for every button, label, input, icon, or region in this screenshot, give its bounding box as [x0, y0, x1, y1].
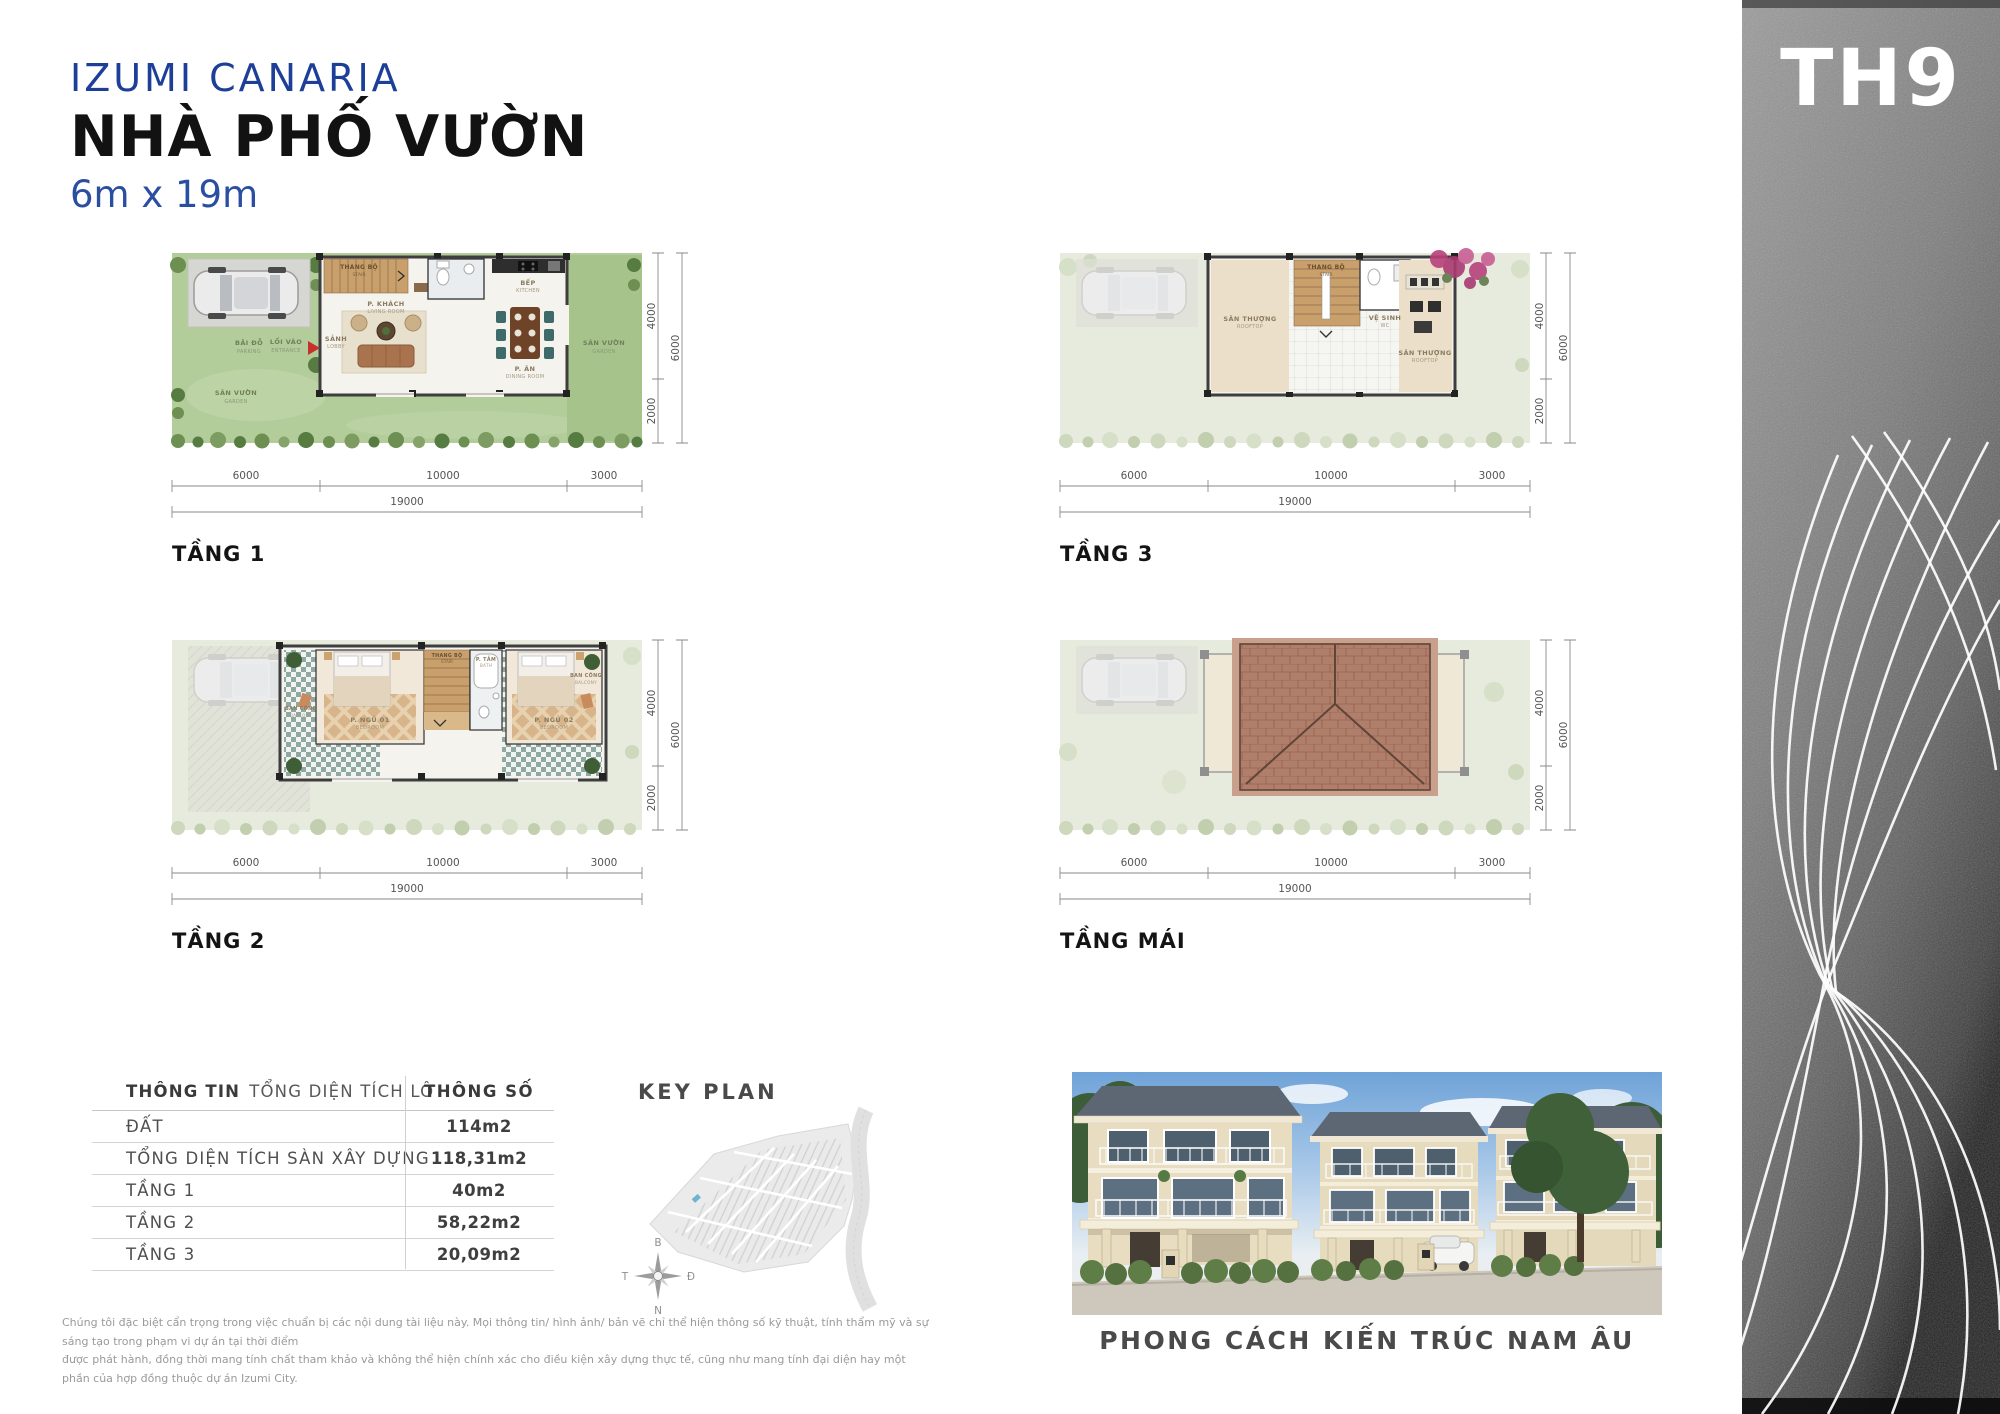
svg-text:SẢNH: SẢNH	[325, 333, 347, 343]
table-header-right: THÔNG SỐ	[405, 1082, 553, 1101]
svg-text:3000: 3000	[1479, 470, 1506, 482]
disclaimer-line-1: Chúng tôi đặc biệt cẩn trọng trong việc …	[62, 1314, 930, 1351]
svg-text:4000: 4000	[646, 303, 658, 330]
svg-text:3000: 3000	[1479, 857, 1506, 869]
project-name: IZUMI CANARIA	[70, 56, 588, 100]
floor-label-tang-2: TẦNG 2	[172, 929, 701, 953]
svg-text:P. ĂN: P. ĂN	[515, 364, 536, 373]
car-top-view	[194, 267, 298, 319]
svg-text:BALCONY: BALCONY	[575, 680, 597, 685]
svg-text:STAIR: STAIR	[1319, 272, 1333, 278]
svg-text:LOBBY: LOBBY	[327, 344, 345, 350]
header: IZUMI CANARIA NHÀ PHỐ VƯỜN 6m x 19m	[70, 56, 588, 216]
disclaimer-line-2: được phát hành, đồng thời mang tính chất…	[62, 1351, 930, 1388]
svg-text:10000: 10000	[426, 470, 459, 482]
svg-text:BÃI ĐỖ: BÃI ĐỖ	[235, 337, 263, 347]
svg-text:6000: 6000	[670, 722, 682, 749]
table-divider	[405, 1076, 406, 1269]
floor-label-tang-mai: TẦNG MÁI	[1060, 929, 1589, 953]
svg-text:KITCHEN: KITCHEN	[516, 288, 540, 294]
townhouse-center	[1310, 1112, 1488, 1272]
svg-text:STAIR: STAIR	[441, 659, 453, 664]
tang1-parking	[188, 259, 310, 327]
svg-text:THANG BỘ: THANG BỘ	[432, 652, 463, 659]
svg-text:10000: 10000	[1314, 470, 1347, 482]
disclaimer: Chúng tôi đặc biệt cẩn trọng trong việc …	[62, 1314, 930, 1389]
spec-label: TỔNG DIỆN TÍCH SÀN XÂY DỰNG	[92, 1149, 405, 1168]
svg-text:THANG BỘ: THANG BỘ	[1307, 264, 1345, 271]
svg-text:SÂN THƯỢNG: SÂN THƯỢNG	[1398, 348, 1451, 357]
svg-text:GARDEN: GARDEN	[592, 349, 615, 355]
spec-value: 40m2	[405, 1181, 553, 1200]
svg-text:19000: 19000	[390, 496, 423, 508]
svg-text:4000: 4000	[646, 690, 658, 717]
floor-plan-tang-3: SÂN THƯỢNG ROOFTOP THANG BỘ STAIR VỆ SIN…	[1054, 245, 1589, 566]
townhouse-left	[1074, 1086, 1302, 1267]
spec-value: 114m2	[405, 1117, 553, 1136]
compass-east-label: Đ	[687, 1271, 695, 1283]
table-row: TẦNG 2 58,22m2	[92, 1207, 554, 1239]
spec-value: 58,22m2	[405, 1213, 553, 1232]
compass-north-label: B	[654, 1237, 661, 1249]
svg-text:SÂN VƯỜN: SÂN VƯỜN	[215, 388, 257, 397]
floor-label-tang-3: TẦNG 3	[1060, 542, 1589, 566]
compass-west-label: T	[621, 1271, 629, 1283]
floor-plan-tang-2: BAN CÔNG BALCONY P. NGỦ 01 BEDROOM THANG…	[166, 632, 701, 953]
svg-text:P. KHÁCH: P. KHÁCH	[367, 299, 404, 308]
svg-text:10000: 10000	[1314, 857, 1347, 869]
svg-text:2000: 2000	[1534, 785, 1546, 812]
svg-text:SÂN THƯỢNG: SÂN THƯỢNG	[1223, 314, 1276, 323]
svg-text:3000: 3000	[591, 470, 618, 482]
spec-label: ĐẤT	[92, 1117, 405, 1136]
svg-text:6000: 6000	[670, 335, 682, 362]
svg-text:BẾP: BẾP	[520, 277, 535, 287]
sidebar-texture	[1742, 0, 2000, 1414]
svg-text:6000: 6000	[1121, 470, 1148, 482]
svg-text:THANG BỘ: THANG BỘ	[340, 264, 378, 271]
svg-text:6000: 6000	[1558, 335, 1570, 362]
svg-text:19000: 19000	[1278, 496, 1311, 508]
svg-text:LỐI VÀO: LỐI VÀO	[270, 336, 302, 346]
svg-text:BEDROOM: BEDROOM	[356, 725, 384, 731]
svg-text:ROOFTOP: ROOFTOP	[1237, 324, 1263, 330]
car-faded	[1082, 267, 1186, 319]
svg-text:BEDROOM: BEDROOM	[540, 725, 568, 731]
table-row: TẦNG 3 20,09m2	[92, 1239, 554, 1271]
kitchen-counter	[492, 259, 565, 273]
svg-text:SÂN VƯỜN: SÂN VƯỜN	[583, 338, 625, 347]
svg-text:BAN CÔNG: BAN CÔNG	[570, 672, 602, 679]
spec-label: TẦNG 1	[92, 1181, 405, 1200]
lot-size: 6m x 19m	[70, 173, 588, 216]
svg-text:WC: WC	[1380, 323, 1389, 329]
svg-text:BATH: BATH	[480, 663, 492, 668]
floor-label-tang-1: TẦNG 1	[172, 542, 701, 566]
table-row: TỔNG DIỆN TÍCH SÀN XÂY DỰNG 118,31m2	[92, 1143, 554, 1175]
brochure-page: IZUMI CANARIA NHÀ PHỐ VƯỜN 6m x 19m	[0, 0, 2000, 1414]
unit-code-badge: TH9	[1742, 34, 2000, 124]
keyplan-map: B N T Đ	[616, 1104, 938, 1316]
svg-text:10000: 10000	[426, 857, 459, 869]
svg-text:ROOFTOP: ROOFTOP	[1412, 358, 1438, 364]
svg-text:BALCONY: BALCONY	[290, 713, 312, 718]
table-row: ĐẤT 114m2	[92, 1111, 554, 1143]
bathroom	[428, 259, 484, 299]
svg-text:ENTRANCE: ENTRANCE	[271, 348, 300, 354]
table-header-row: THÔNG TINTỔNG DIỆN TÍCH LÔ THÔNG SỐ	[92, 1072, 554, 1111]
keyplan-title: KEY PLAN	[638, 1080, 778, 1104]
table-row: TẦNG 1 40m2	[92, 1175, 554, 1207]
svg-text:19000: 19000	[390, 883, 423, 895]
svg-text:LIVING ROOM: LIVING ROOM	[367, 309, 404, 315]
photo-caption: PHONG CÁCH KIẾN TRÚC NAM ÂU	[1072, 1326, 1662, 1355]
svg-text:2000: 2000	[646, 785, 658, 812]
dining-set	[496, 307, 554, 359]
spec-value: 20,09m2	[405, 1245, 553, 1264]
svg-text:3000: 3000	[591, 857, 618, 869]
spec-label: TẦNG 3	[92, 1245, 405, 1264]
svg-text:2000: 2000	[646, 398, 658, 425]
svg-text:VỆ SINH: VỆ SINH	[1369, 313, 1402, 322]
svg-text:2000: 2000	[1534, 398, 1546, 425]
spec-value: 118,31m2	[405, 1149, 553, 1168]
svg-text:4000: 4000	[1534, 690, 1546, 717]
svg-text:4000: 4000	[1534, 303, 1546, 330]
floor-plan-tang-mai: 6000 10000 3000 19000 4000 2000 6000 TẦN…	[1054, 632, 1589, 953]
hip-roof	[1232, 638, 1438, 796]
svg-text:PARKING: PARKING	[237, 349, 261, 355]
spec-label: TẦNG 2	[92, 1213, 405, 1232]
svg-text:P. NGỦ 02: P. NGỦ 02	[534, 714, 573, 724]
svg-text:19000: 19000	[1278, 883, 1311, 895]
page-title: NHÀ PHỐ VƯỜN	[70, 104, 588, 170]
floor-plan-tang-1: BÃI ĐỖ PARKING SÂN VƯỜN GARDEN LỐI VÀO E…	[166, 245, 701, 566]
table-header-left: THÔNG TINTỔNG DIỆN TÍCH LÔ	[92, 1082, 405, 1101]
river	[854, 1110, 870, 1308]
svg-text:6000: 6000	[1558, 722, 1570, 749]
living-room-furniture	[342, 311, 426, 373]
svg-text:DINING ROOM: DINING ROOM	[506, 374, 545, 380]
svg-text:6000: 6000	[233, 857, 260, 869]
svg-text:6000: 6000	[233, 470, 260, 482]
svg-text:GARDEN: GARDEN	[224, 399, 247, 405]
stair	[1294, 260, 1360, 337]
svg-text:6000: 6000	[1121, 857, 1148, 869]
svg-text:STAIR: STAIR	[352, 272, 366, 278]
svg-text:BAN CÔNG: BAN CÔNG	[285, 705, 317, 712]
building-render-photo	[1072, 1072, 1662, 1315]
spec-table: THÔNG TINTỔNG DIỆN TÍCH LÔ THÔNG SỐ ĐẤT …	[92, 1072, 554, 1271]
sidebar: TH9	[1742, 0, 2000, 1414]
car-faded	[1082, 654, 1186, 706]
svg-text:P. NGỦ 01: P. NGỦ 01	[350, 714, 389, 724]
